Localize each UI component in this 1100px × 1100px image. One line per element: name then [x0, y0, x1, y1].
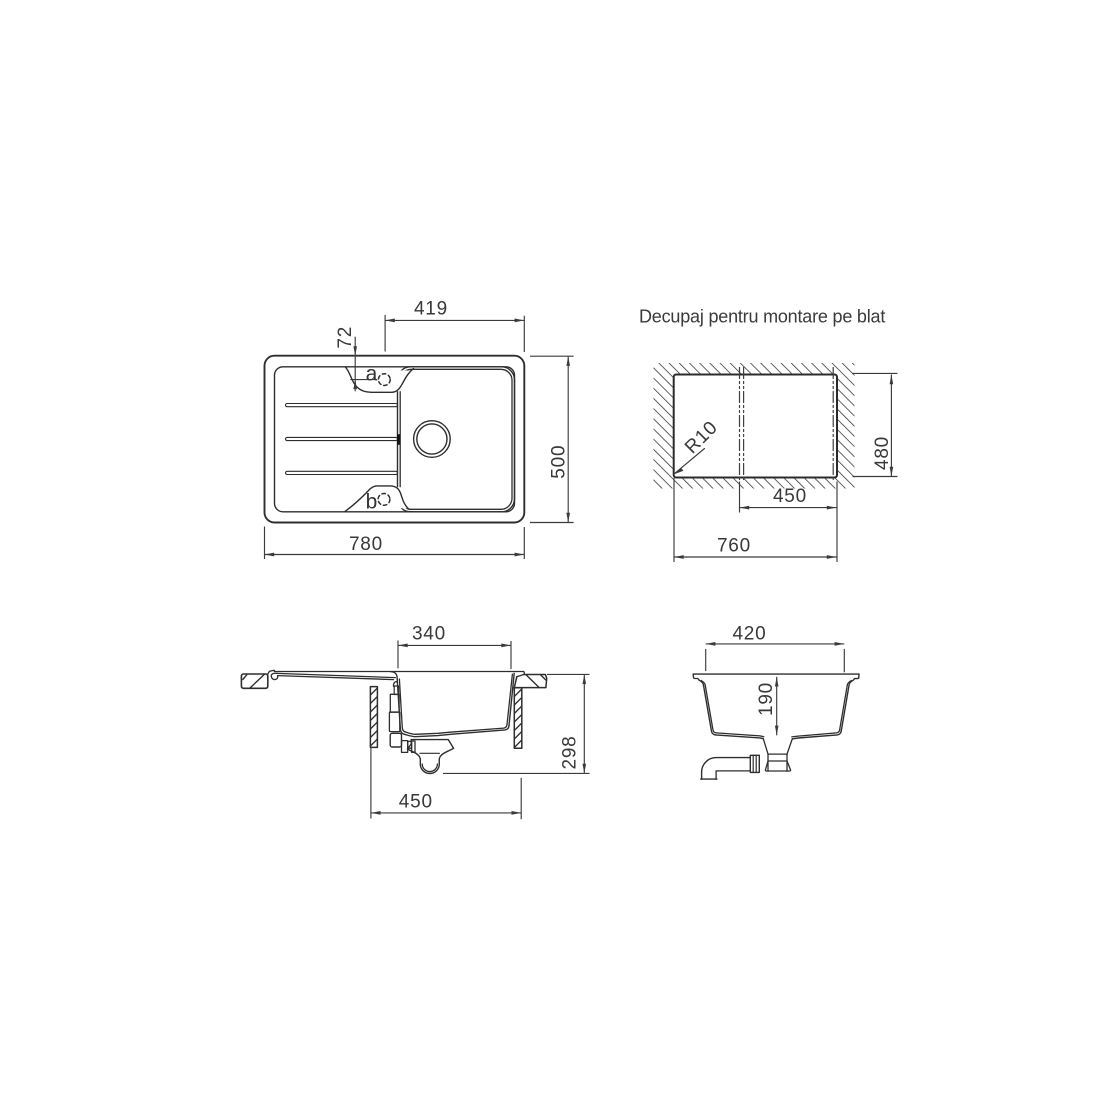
- svg-text:Decupaj pentru montare pe blat: Decupaj pentru montare pe blat: [639, 307, 885, 327]
- svg-text:72: 72: [335, 326, 356, 349]
- svg-text:340: 340: [412, 624, 446, 645]
- svg-text:a: a: [366, 363, 378, 386]
- svg-text:780: 780: [349, 534, 383, 555]
- svg-text:b: b: [366, 491, 378, 514]
- svg-text:480: 480: [872, 436, 893, 470]
- svg-text:450: 450: [399, 791, 433, 812]
- svg-text:190: 190: [756, 682, 777, 716]
- svg-text:450: 450: [773, 486, 807, 507]
- svg-text:420: 420: [732, 624, 766, 645]
- svg-text:298: 298: [560, 735, 581, 769]
- svg-text:760: 760: [717, 536, 751, 557]
- svg-text:419: 419: [414, 299, 448, 320]
- svg-text:500: 500: [548, 445, 569, 479]
